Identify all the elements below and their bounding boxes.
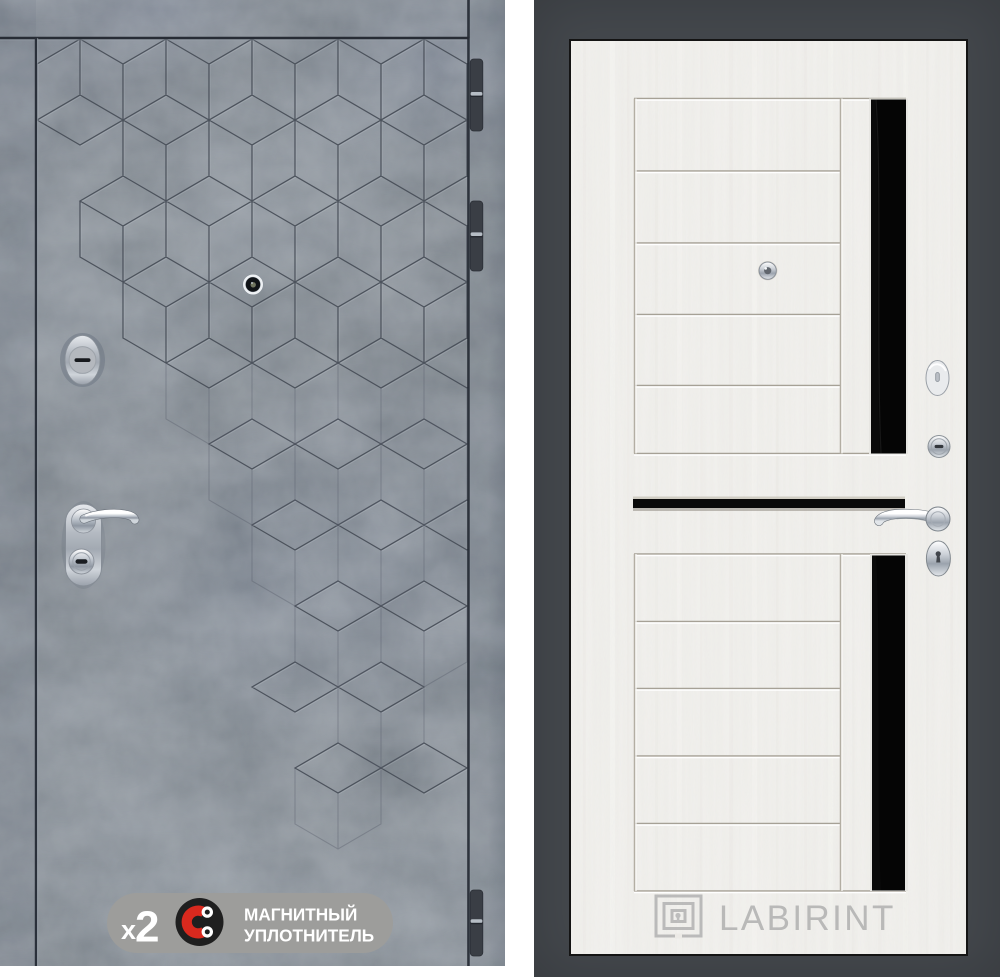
svg-text:УПЛОТНИТЕЛЬ: УПЛОТНИТЕЛЬ — [244, 926, 374, 946]
svg-text:x: x — [121, 915, 136, 945]
svg-text:МАГНИТНЫЙ: МАГНИТНЫЙ — [244, 905, 357, 925]
svg-text:LABIRINT: LABIRINT — [719, 899, 896, 938]
svg-text:2: 2 — [135, 903, 159, 952]
